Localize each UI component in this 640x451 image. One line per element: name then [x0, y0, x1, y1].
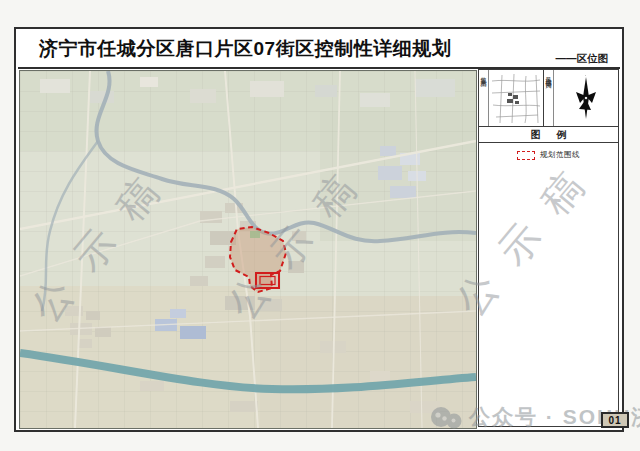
- legend-body: 规划范围线: [479, 150, 618, 160]
- wind-rose-cell: 风玫瑰与比例尺: [544, 70, 618, 126]
- location-sketch-cell: 位置示意图: [479, 70, 544, 126]
- location-sketch-caption: 位置示意图: [479, 70, 489, 126]
- plan-sheet: 济宁市任城分区唐口片区07街区控制性详细规划 ——区位图: [14, 27, 624, 432]
- title-bar: 济宁市任城分区唐口片区07街区控制性详细规划 ——区位图: [18, 31, 620, 69]
- side-panel: 位置示意图: [478, 69, 619, 427]
- satellite-map-graphic: [20, 71, 476, 428]
- map-type-label: ——区位图: [556, 52, 609, 66]
- planning-boundary-swatch: [517, 151, 535, 160]
- location-sketch-caption-text: 位置示意图: [481, 72, 487, 126]
- satellite-map: [19, 70, 477, 429]
- legend-item-planning-boundary: 规划范围线: [479, 150, 618, 160]
- sheet-inner-frame: 济宁市任城分区唐口片区07街区控制性详细规划 ——区位图: [18, 31, 620, 428]
- legend-item-label: 规划范围线: [540, 150, 580, 160]
- page-title: 济宁市任城分区唐口片区07街区控制性详细规划: [39, 36, 451, 62]
- legend-header: 图例: [479, 127, 618, 143]
- location-sketch-drawing: [490, 71, 542, 125]
- sheet-content: 位置示意图: [18, 69, 620, 428]
- wind-rose-icon: [560, 72, 612, 124]
- sheet-number-badge: 01: [601, 412, 629, 428]
- location-sketch: [489, 70, 543, 126]
- green-patch: [250, 231, 260, 238]
- wind-rose-caption-text: 风玫瑰与比例尺: [546, 72, 552, 126]
- wind-rose-caption: 风玫瑰与比例尺: [544, 70, 554, 126]
- highlighted-subzone: [256, 273, 279, 288]
- panel-insets-row: 位置示意图: [479, 70, 618, 127]
